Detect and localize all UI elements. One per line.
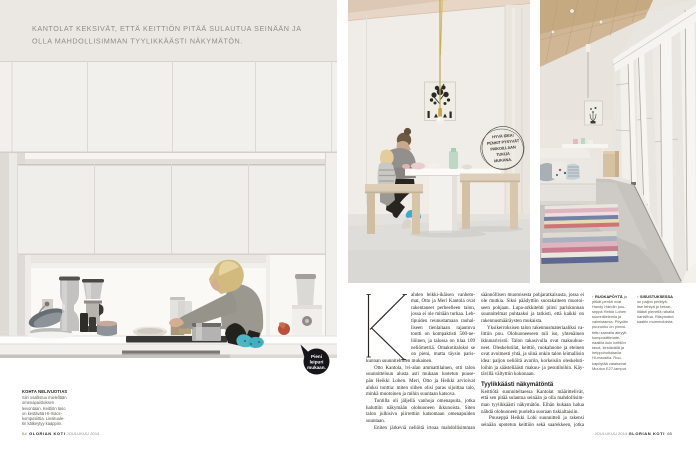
svg-text:OLLA MAHDOLLISIMMAN TYYLIKKÄÄS: OLLA MAHDOLLISIMMAN TYYLIKKÄÄSTI NÄKYMÄT… — [32, 37, 243, 46]
svg-text:leipuri: leipuri — [310, 360, 324, 365]
svg-text:mukaan.: mukaan. — [307, 365, 326, 370]
svg-text:Pieni: Pieni — [311, 354, 322, 359]
svg-text:KANTOLAT KEKSIVÄT, ETTÄ KEITTI: KANTOLAT KEKSIVÄT, ETTÄ KEITTIÖN PITÄÄ S… — [32, 24, 302, 33]
